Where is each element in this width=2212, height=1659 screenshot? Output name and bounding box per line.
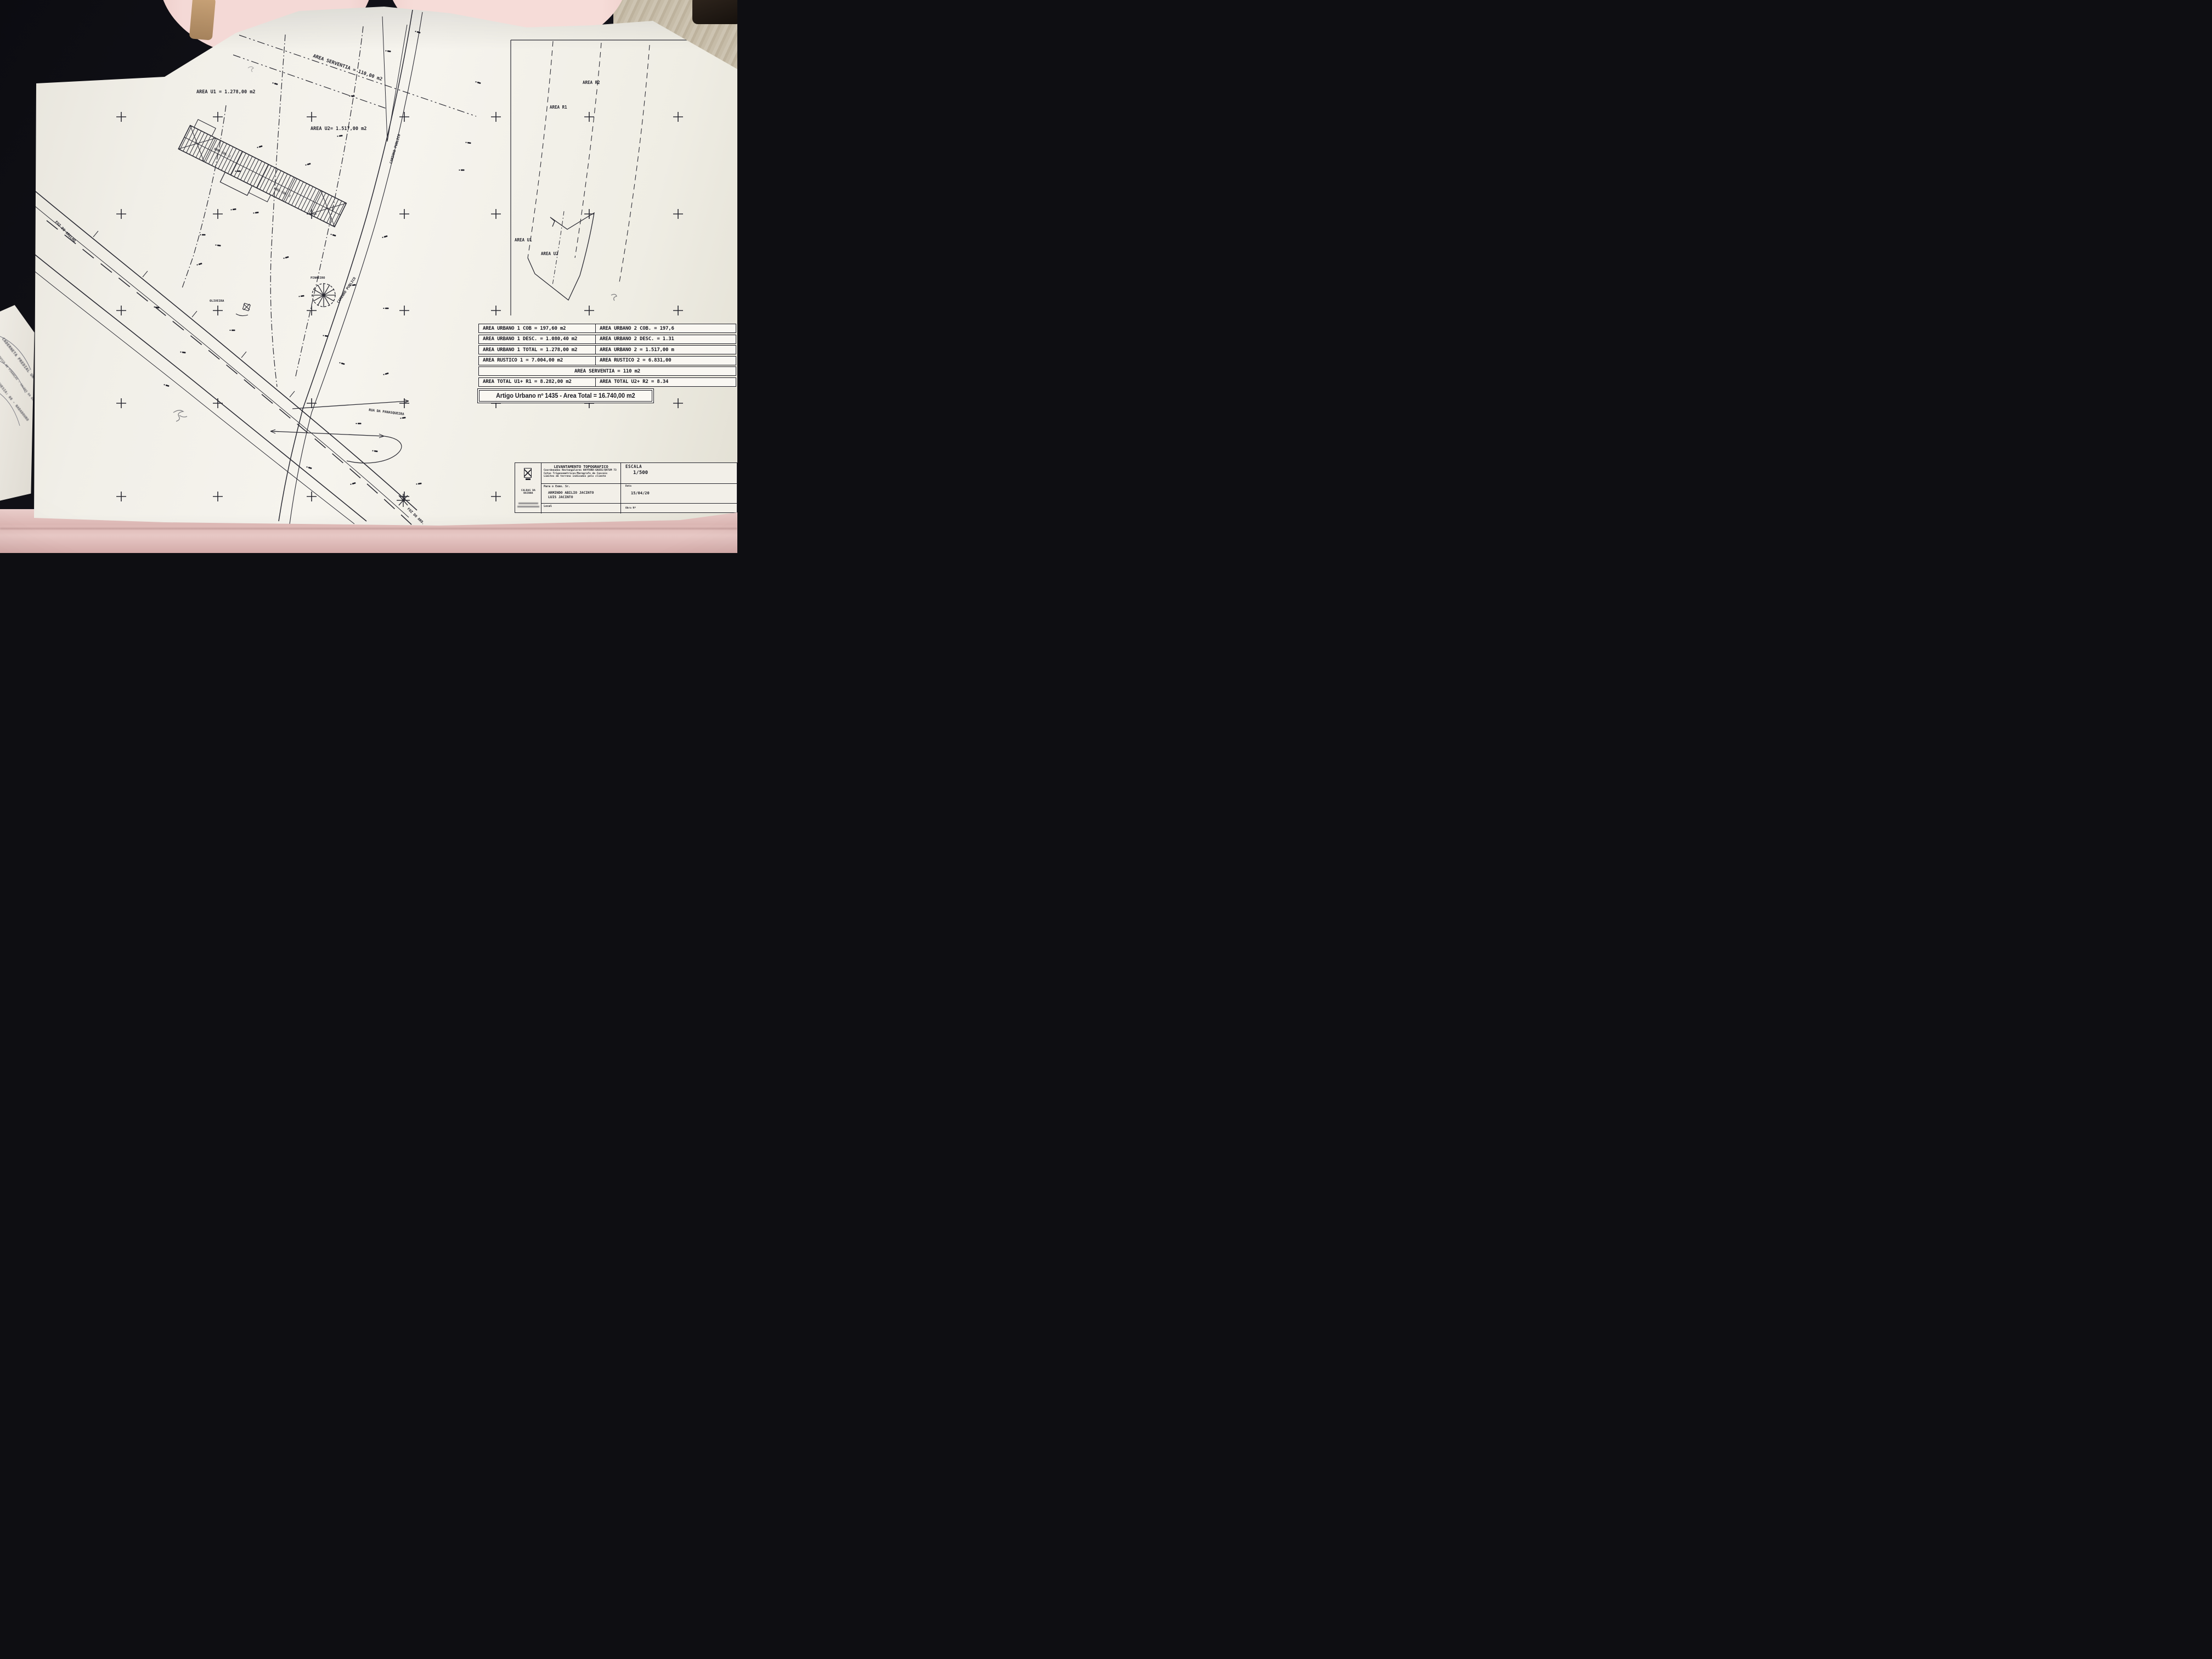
cell-total-u1r1: AREA TOTAL U1+ R1 = 8.282,00 m2 bbox=[479, 378, 596, 386]
survey-paper: AREA COB. 1 AREA COB. 2 bbox=[0, 0, 737, 553]
survey-grid-crosses bbox=[66, 58, 683, 501]
municipal-crest-icon bbox=[524, 468, 532, 478]
artigo-urbano-banner: Artigo Urbano nº 1435 - Area Total = 16.… bbox=[477, 388, 654, 403]
building: AREA COB. 1 AREA COB. 2 bbox=[173, 117, 350, 236]
well-structure bbox=[236, 303, 250, 316]
obra-cell: Obra Nº bbox=[620, 504, 737, 513]
table-row: AREA RUSTICO 1 = 7.004,00 m2 AREA RUSTIC… bbox=[478, 356, 736, 365]
areas-table: AREA URBANO 1 COB = 197,60 m2 AREA URBAN… bbox=[478, 324, 736, 388]
photo-of-survey-plan: CADERNETA PREDIAL UR SERVIÇO DE FINANÇAS… bbox=[0, 0, 737, 553]
inset-plan: AREA R2 AREA R1 AREA U1 AREA U2 bbox=[511, 40, 737, 315]
right-road bbox=[279, 10, 422, 524]
table-row: AREA URBANO 1 COB = 197,60 m2 AREA URBAN… bbox=[478, 324, 736, 333]
dark-bag bbox=[692, 0, 737, 24]
client-cell: Para o Exmo. Sr. ARMINDO ABILIO JACINTO … bbox=[541, 484, 620, 504]
caminho-publico-upper-label: CAMINHO PUBLICO bbox=[389, 134, 401, 165]
rua-panasqueira-label: RUA DA PANASQUEIRA bbox=[369, 408, 405, 416]
title-block-logo-cell: CALDAS DA RAINHA bbox=[515, 463, 541, 513]
inset-area-u2-label: AREA U2 bbox=[541, 251, 558, 256]
cell-serventia: AREA SERVENTIA = 110 m2 bbox=[479, 369, 736, 374]
company-name: CALDAS DA RAINHA bbox=[516, 489, 540, 495]
serventia-strip bbox=[233, 35, 476, 116]
hand-sliver bbox=[189, 0, 216, 41]
table-row-serventia: AREA SERVENTIA = 110 m2 bbox=[478, 366, 736, 376]
local-cell: Local bbox=[541, 504, 620, 513]
inset-area-r1-label: AREA R1 bbox=[550, 105, 567, 110]
main-road bbox=[3, 189, 417, 526]
client-label: Para o Exmo. Sr. bbox=[544, 485, 618, 488]
cell-urbano1-cob: AREA URBANO 1 COB = 197,60 m2 bbox=[479, 324, 596, 332]
client-name: LUIS JACINTO bbox=[548, 495, 618, 500]
obra-label: Obra Nº bbox=[625, 507, 737, 510]
cell-urbano1-total: AREA URBANO 1 TOTAL = 1.278,00 m2 bbox=[479, 346, 596, 354]
scale-cell: ESCALA 1/500 bbox=[620, 463, 737, 484]
escala-label: ESCALA bbox=[625, 464, 737, 469]
fabric-seam bbox=[0, 528, 737, 529]
inset-area-u1-label: AREA U1 bbox=[515, 238, 532, 242]
title-block-header-cell: LEVANTAMENTO TOPOGRAFICO Coordenadas Rec… bbox=[541, 463, 620, 484]
cell-urbano1-desc: AREA URBANO 1 DESC. = 1.080,40 m2 bbox=[479, 335, 596, 343]
address-line-blur bbox=[518, 503, 538, 504]
pinheiro-label: PINHEIRO bbox=[311, 276, 325, 280]
cell-urbano2-total: AREA URBANO 2 = 1.517,00 m bbox=[596, 347, 736, 353]
oliveira-label: OLIVEIRA bbox=[210, 300, 224, 303]
escala-value: 1/500 bbox=[633, 470, 737, 476]
foz-do-arelho-label: FOZ DO ARELHO bbox=[54, 220, 77, 243]
inset-area-r2-label: AREA R2 bbox=[583, 80, 600, 85]
artigo-urbano-text: Artigo Urbano nº 1435 - Area Total = 16.… bbox=[496, 393, 635, 399]
title-block: CALDAS DA RAINHA LEVANTAMENTO TOPOGRAFIC… bbox=[515, 462, 737, 513]
data-label: Data bbox=[625, 485, 737, 488]
drawing-title: LEVANTAMENTO TOPOGRAFICO bbox=[544, 464, 618, 469]
pine-tree-symbol bbox=[312, 283, 336, 307]
area-serventia-label: AREA SERVENTIA = 110,00 m2 bbox=[312, 53, 383, 82]
client-name: ARMINDO ABILIO JACINTO bbox=[548, 491, 618, 495]
data-value: 15/04/20 bbox=[631, 491, 737, 495]
cell-urbano2-desc: AREA URBANO 2 DESC. = 1.31 bbox=[596, 336, 736, 342]
address-line-blur bbox=[517, 506, 539, 507]
small-tree-symbol bbox=[397, 494, 410, 507]
branch-road bbox=[270, 399, 409, 463]
table-row: AREA TOTAL U1+ R1 = 8.282,00 m2 AREA TOT… bbox=[478, 377, 736, 387]
cell-rustico2: AREA RUSTICO 2 = 6.831,00 bbox=[596, 358, 736, 363]
spot-elevation-marks bbox=[154, 31, 481, 485]
local-label: Local bbox=[544, 505, 552, 508]
table-row: AREA URBANO 1 TOTAL = 1.278,00 m2 AREA U… bbox=[478, 345, 736, 354]
cell-rustico1: AREA RUSTICO 1 = 7.004,00 m2 bbox=[479, 357, 596, 365]
subtitle-line: Limites de terreno indicados pelo client… bbox=[544, 475, 618, 478]
date-cell: Data 15/04/20 bbox=[620, 484, 737, 504]
area-u1-label: AREA U1 = 1.278,00 m2 bbox=[196, 89, 255, 95]
cell-total-u2r2: AREA TOTAL U2+ R2 = 8.34 bbox=[596, 379, 736, 385]
table-row: AREA URBANO 1 DESC. = 1.080,40 m2 AREA U… bbox=[478, 335, 736, 344]
cell-urbano2-cob: AREA URBANO 2 COB. = 197,6 bbox=[596, 326, 736, 331]
area-u2-label: AREA U2= 1.517,00 m2 bbox=[311, 126, 366, 132]
